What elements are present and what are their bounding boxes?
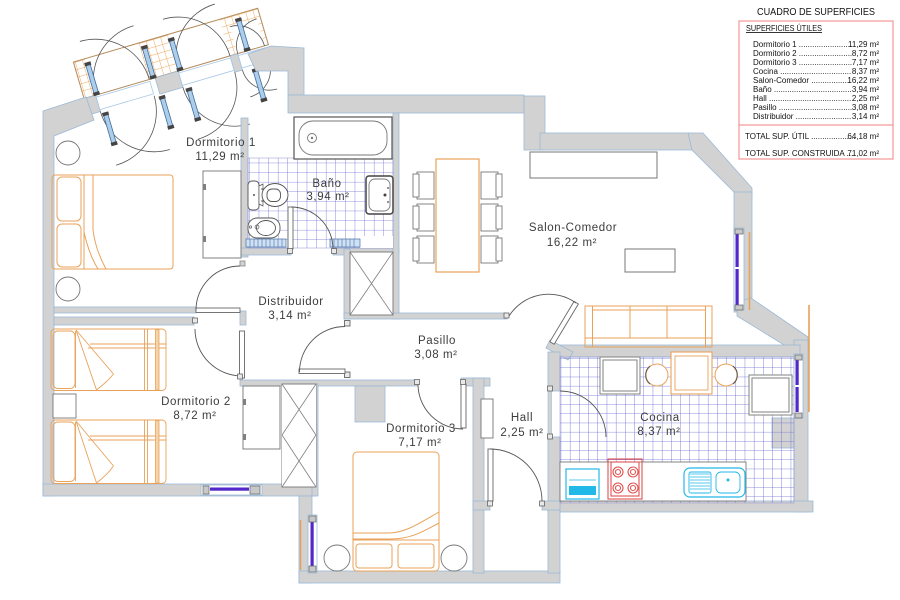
svg-text:Pasillo ......................: Pasillo ................................… [753, 103, 852, 112]
svg-text:8,37 m²: 8,37 m² [637, 426, 680, 438]
svg-text:3,14 m²: 3,14 m² [268, 310, 311, 322]
svg-text:Dormitorio 1: Dormitorio 1 [186, 137, 256, 149]
svg-text:11,29 m²: 11,29 m² [195, 151, 244, 163]
svg-text:TOTAL SUP. CONSTRUIDA ....: TOTAL SUP. CONSTRUIDA .... [745, 149, 855, 158]
svg-text:Salon-Comedor ................: Salon-Comedor .................. [753, 76, 851, 85]
svg-text:16,22 m²: 16,22 m² [847, 76, 879, 85]
svg-text:64,18 m²: 64,18 m² [847, 132, 879, 141]
svg-text:Hall: Hall [511, 412, 533, 424]
svg-text:3,08 m²: 3,08 m² [852, 103, 879, 112]
svg-text:Dormitorio 1 .................: Dormitorio 1 ........................ [753, 40, 852, 49]
svg-text:Baño: Baño [312, 178, 341, 190]
svg-text:TOTAL SUP. ÚTIL ..............: TOTAL SUP. ÚTIL .................... [745, 132, 856, 141]
svg-text:Distribuidor: Distribuidor [258, 296, 323, 308]
svg-text:11,29 m²: 11,29 m² [848, 40, 879, 49]
svg-text:3,94 m²: 3,94 m² [306, 191, 349, 203]
svg-text:Cocina .......................: Cocina ................................ [753, 67, 851, 76]
svg-text:Pasillo: Pasillo [418, 335, 456, 347]
svg-text:Dormitorio 3 .................: Dormitorio 3 ........................ [753, 58, 852, 67]
svg-text:3,08 m²: 3,08 m² [414, 349, 457, 361]
svg-text:7,17 m²: 7,17 m² [398, 437, 441, 449]
svg-text:Cocina: Cocina [640, 412, 679, 424]
svg-text:Hall .........................: Hall ...................................… [753, 94, 851, 103]
svg-text:3,14 m²: 3,14 m² [852, 112, 879, 121]
svg-text:Salon-Comedor: Salon-Comedor [529, 222, 617, 234]
svg-text:71,02 m²: 71,02 m² [847, 149, 879, 158]
svg-text:Distribuidor .................: Distribuidor ......................... [753, 112, 851, 121]
svg-text:16,22 m²: 16,22 m² [547, 237, 597, 249]
svg-text:Dormitorio 2: Dormitorio 2 [161, 396, 231, 408]
svg-text:8,72 m²: 8,72 m² [852, 49, 879, 58]
svg-text:CUADRO DE SUPERFICIES: CUADRO DE SUPERFICIES [757, 6, 875, 18]
svg-text:8,72 m²: 8,72 m² [173, 410, 216, 422]
svg-text:Dormitorio 2 .................: Dormitorio 2 ........................ [753, 49, 852, 58]
svg-text:SUPERFICIES ÚTILES: SUPERFICIES ÚTILES [746, 23, 822, 33]
svg-text:2,25 m²: 2,25 m² [852, 94, 879, 103]
svg-text:7,17 m²: 7,17 m² [852, 58, 879, 67]
svg-text:2,25 m²: 2,25 m² [500, 427, 543, 439]
svg-text:8,37 m²: 8,37 m² [852, 67, 879, 76]
svg-text:3,94 m²: 3,94 m² [852, 85, 879, 94]
svg-text:Dormitorio 3: Dormitorio 3 [386, 423, 456, 435]
svg-text:Baño .........................: Baño ................................... [753, 85, 852, 94]
